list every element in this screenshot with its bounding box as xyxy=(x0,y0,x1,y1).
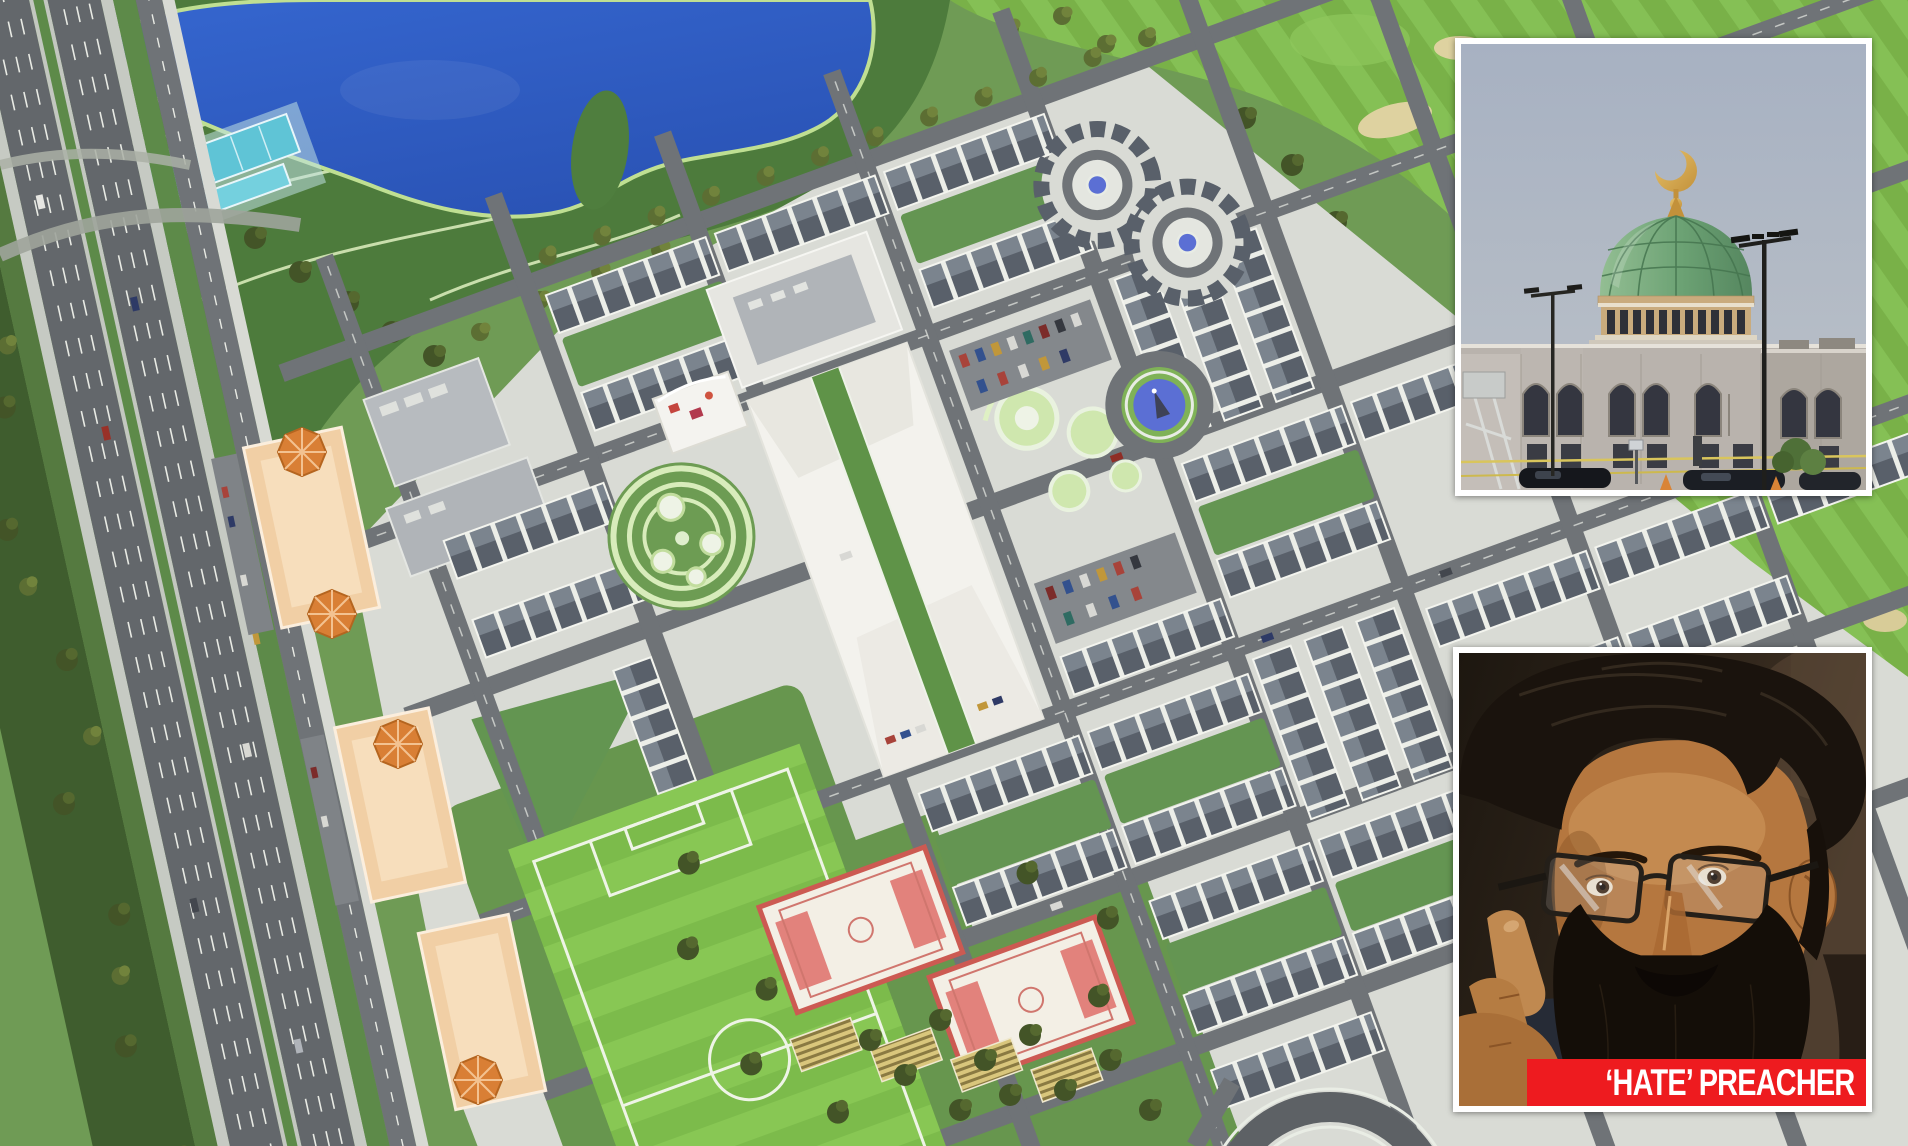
dome-drum xyxy=(1589,303,1763,349)
news-composite: ‘HATE’ PREACHER xyxy=(0,0,1908,1146)
umbrella-pavilion xyxy=(454,1056,502,1104)
umbrella-pavilion xyxy=(374,720,422,768)
umbrella-pavilion xyxy=(278,428,326,476)
hate-preacher-badge: ‘HATE’ PREACHER xyxy=(1527,1059,1866,1106)
umbrella-pavilion xyxy=(308,590,356,638)
badge-label: ‘HATE’ PREACHER xyxy=(1605,1062,1854,1104)
preacher-inset-photo: ‘HATE’ PREACHER xyxy=(1453,647,1872,1112)
mosque-inset-photo xyxy=(1455,38,1872,496)
